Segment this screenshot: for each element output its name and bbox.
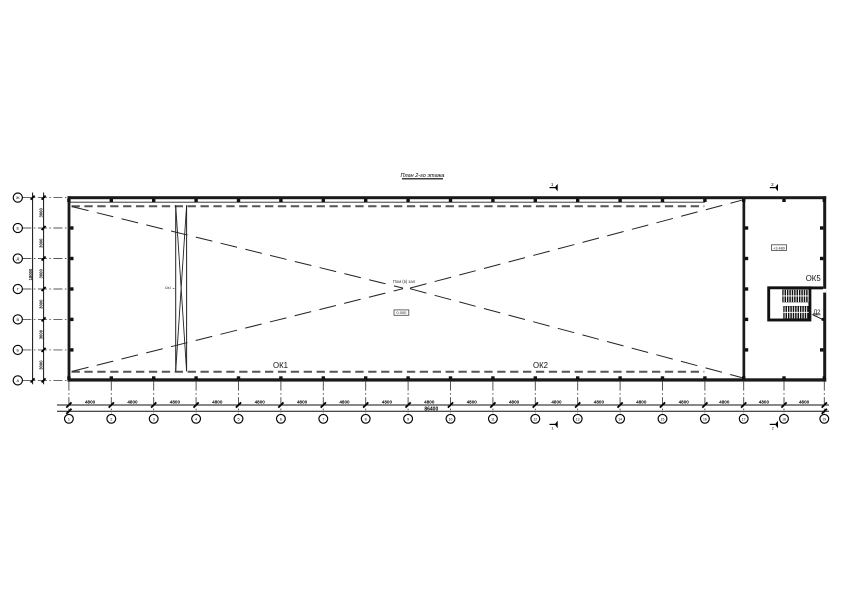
svg-text:15: 15 (661, 417, 665, 421)
svg-text:4800: 4800 (170, 400, 181, 405)
svg-text:5: 5 (237, 417, 239, 421)
svg-text:86400: 86400 (424, 407, 438, 413)
svg-text:3: 3 (153, 417, 155, 421)
svg-text:+3.480: +3.480 (773, 246, 785, 250)
svg-text:Д: Д (16, 256, 19, 261)
svg-text:4800: 4800 (509, 400, 520, 405)
svg-text:0.000: 0.000 (396, 310, 407, 315)
svg-text:18000: 18000 (28, 268, 33, 280)
svg-text:3000: 3000 (38, 238, 43, 248)
svg-text:2: 2 (771, 182, 774, 187)
svg-text:12: 12 (533, 417, 537, 421)
svg-text:3000: 3000 (38, 268, 43, 278)
svg-text:3000: 3000 (38, 207, 43, 217)
svg-text:ОК5: ОК5 (806, 274, 822, 283)
svg-text:11: 11 (491, 417, 495, 421)
svg-text:4800: 4800 (759, 400, 770, 405)
svg-text:4800: 4800 (85, 400, 96, 405)
svg-text:Б: Б (16, 347, 19, 352)
svg-text:9: 9 (407, 417, 409, 421)
svg-text:1: 1 (68, 417, 70, 421)
svg-text:16: 16 (703, 417, 707, 421)
svg-text:4: 4 (195, 417, 197, 421)
svg-text:6: 6 (280, 417, 282, 421)
svg-text:18: 18 (782, 417, 786, 421)
svg-text:4800: 4800 (679, 400, 690, 405)
svg-text:Е: Е (16, 226, 19, 231)
svg-text:4800: 4800 (636, 400, 647, 405)
svg-text:14: 14 (618, 417, 622, 421)
svg-text:4800: 4800 (339, 400, 350, 405)
svg-text:2: 2 (110, 417, 112, 421)
svg-text:В: В (16, 317, 19, 322)
svg-text:17: 17 (742, 417, 746, 421)
svg-text:19: 19 (822, 417, 826, 421)
svg-text:8: 8 (365, 417, 367, 421)
svg-text:4800: 4800 (212, 400, 223, 405)
svg-text:13: 13 (576, 417, 580, 421)
svg-text:3000: 3000 (38, 329, 43, 339)
svg-text:ОК2: ОК2 (533, 361, 548, 370)
svg-text:4800: 4800 (424, 400, 435, 405)
svg-text:4800: 4800 (382, 400, 393, 405)
svg-text:4800: 4800 (297, 400, 308, 405)
svg-text:А: А (16, 378, 19, 383)
svg-text:Пом (в) зал: Пом (в) зал (393, 279, 416, 284)
svg-text:4800: 4800 (255, 400, 266, 405)
svg-text:3000: 3000 (38, 360, 43, 370)
svg-text:Св1: Св1 (165, 286, 171, 290)
svg-text:1: 1 (551, 182, 554, 187)
svg-text:План 2-го этажа: План 2-го этажа (401, 173, 445, 179)
svg-text:4800: 4800 (467, 400, 478, 405)
svg-text:7: 7 (322, 417, 324, 421)
svg-text:4800: 4800 (594, 400, 605, 405)
svg-text:4800: 4800 (127, 400, 138, 405)
svg-text:Ж: Ж (16, 195, 20, 200)
svg-text:ОК1: ОК1 (273, 361, 288, 370)
svg-text:3000: 3000 (38, 299, 43, 309)
svg-text:4800: 4800 (719, 400, 730, 405)
svg-text:10: 10 (449, 417, 453, 421)
svg-text:4800: 4800 (799, 400, 810, 405)
svg-text:4800: 4800 (551, 400, 562, 405)
